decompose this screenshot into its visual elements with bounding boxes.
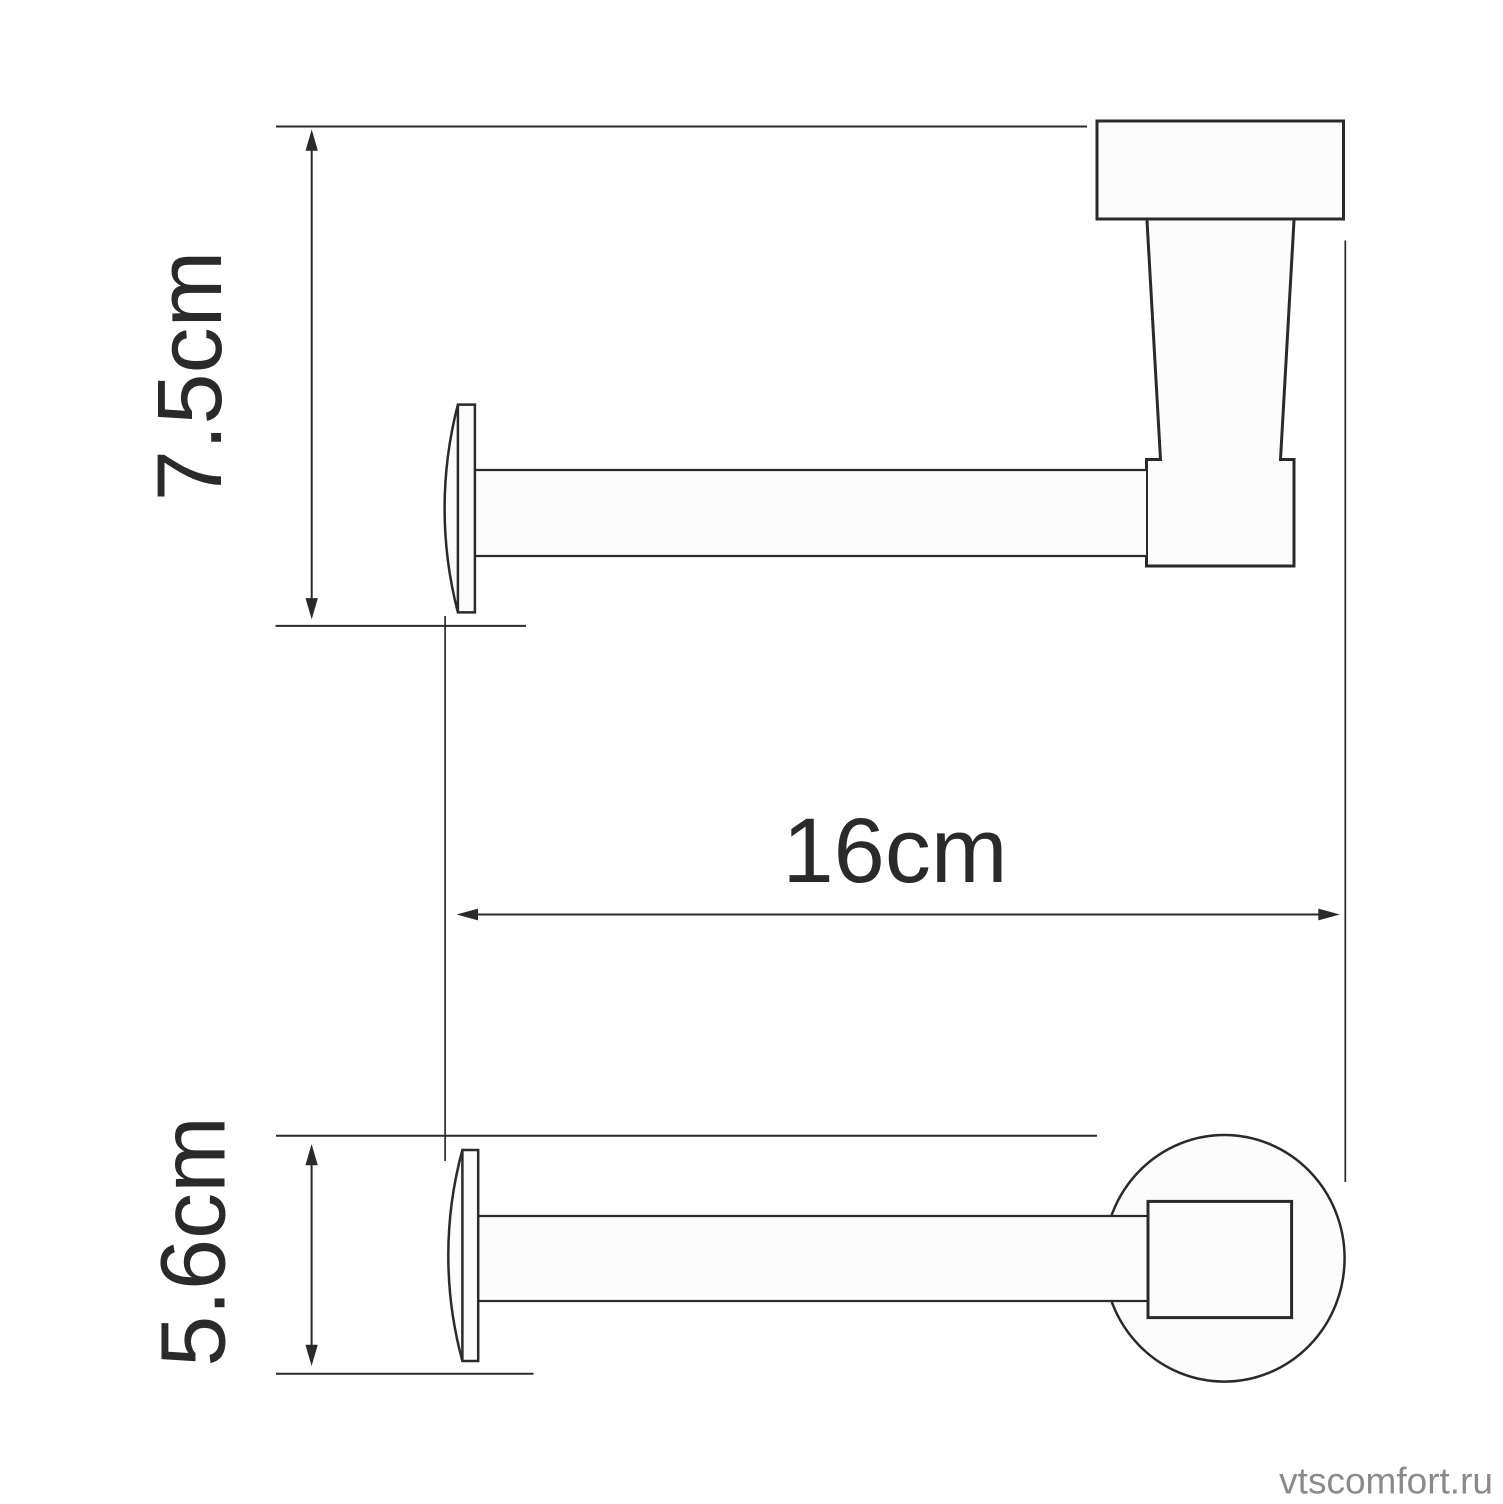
svg-text:16cm: 16cm [783, 800, 1008, 902]
svg-text:vtscomfort.ru: vtscomfort.ru [1279, 1461, 1493, 1502]
svg-text:7.5cm: 7.5cm [139, 251, 241, 502]
svg-text:5.6cm: 5.6cm [143, 1116, 245, 1367]
